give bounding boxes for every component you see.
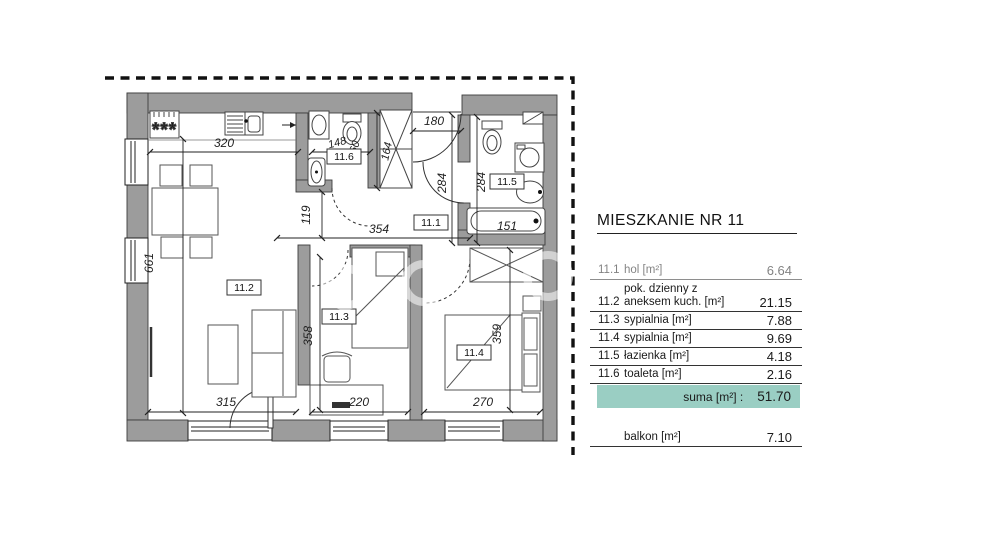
chair: [190, 237, 212, 258]
room-label: hol [m²]: [624, 264, 738, 277]
toilet: [482, 121, 502, 154]
table-row: 11.4 sypialnia [m²] 9.69: [590, 330, 802, 348]
room-label-text: 11.2: [234, 282, 254, 294]
floor-plan-drawing: ***: [0, 0, 1003, 558]
room-number: 11.6: [590, 368, 624, 381]
table-row: 11.1 hol [m²] 6.64: [590, 262, 802, 280]
area-table: MIESZKANIE NR 11 11.1 hol [m²] 6.64 11.2…: [590, 212, 802, 447]
room-label: sypialnia [m²]: [624, 314, 738, 327]
table-row: 11.3 sypialnia [m²] 7.88: [590, 312, 802, 330]
room-area: 6.64: [738, 264, 802, 277]
room-number: 11.2: [590, 296, 624, 309]
room-label-text: 11.3: [329, 311, 349, 323]
window-left-1: [125, 139, 148, 185]
wall-segment: [127, 185, 148, 238]
chair: [161, 237, 183, 258]
area-table-rows: 11.1 hol [m²] 6.64 11.2 pok. dzienny zan…: [590, 262, 802, 384]
table-row: 11.2 pok. dzienny zaneksem kuch. [m²] 21…: [590, 280, 802, 312]
room-area: 2.16: [738, 368, 802, 381]
room-label-text: 11.6: [334, 151, 354, 163]
wall-segment: [127, 283, 148, 420]
chair: [190, 165, 212, 186]
wall-segment: [298, 245, 310, 385]
dim-kitchen-width: 320: [214, 136, 234, 150]
balkon-label: balkon [m²]: [624, 431, 738, 444]
table-row: 11.6 toaleta [m²] 2.16: [590, 366, 802, 384]
room-label: pok. dzienny zaneksem kuch. [m²]: [624, 283, 738, 309]
page-title: MIESZKANIE NR 11: [597, 212, 797, 234]
washing-machine: [515, 143, 544, 172]
dim-bed1-width: 220: [348, 395, 369, 409]
suma-row: suma [m²] : 51.70: [597, 385, 800, 408]
suma-value: 51.70: [757, 389, 791, 404]
room-label-living: 11.2: [227, 280, 261, 295]
room-label: sypialnia [m²]: [624, 332, 738, 345]
wall-segment: [296, 113, 308, 180]
wall-segment: [368, 113, 380, 188]
window-bottom-bed1: [330, 421, 388, 440]
room-label-bed1: 11.3: [322, 309, 356, 324]
dining-table: [152, 188, 218, 235]
small-basin: [308, 158, 325, 186]
wc-door-arc-dashed: [332, 188, 370, 226]
room-number: 11.3: [590, 314, 624, 327]
room-number: 11.5: [590, 350, 624, 363]
chair: [160, 165, 182, 186]
dim-bed2-height: 359: [490, 324, 504, 344]
washbasin: [309, 111, 329, 139]
room-label-bed2: 11.4: [457, 345, 491, 360]
wall-segment: [127, 93, 412, 113]
room-number: 11.4: [590, 332, 624, 345]
room-area: 9.69: [738, 332, 802, 345]
living-room-furniture: [151, 310, 296, 397]
dim-entrance-width: 180: [424, 114, 444, 128]
corner-shelf: [523, 112, 543, 124]
dim-bed2-width: 270: [472, 395, 493, 409]
dining-set: [152, 165, 218, 258]
dim-bathtub-length: 151: [497, 219, 517, 233]
balkon-value: 7.10: [738, 431, 802, 444]
room-area: 4.18: [738, 350, 802, 363]
dim-passage-height: 119: [299, 205, 313, 224]
room-area: 7.88: [738, 314, 802, 327]
wall-segment: [543, 115, 557, 441]
room-label-bath: 11.5: [490, 174, 524, 189]
suma-label: suma [m²] :: [683, 390, 743, 404]
table-row: 11.5 łazienka [m²] 4.18: [590, 348, 802, 366]
stove-burners-symbol: ***: [152, 120, 177, 141]
coffee-table: [208, 325, 238, 384]
room-label-text: 11.5: [497, 176, 517, 188]
kitchen-sink: [225, 112, 263, 135]
dim-bath-height: 284: [474, 172, 488, 193]
desk-chair: [322, 352, 352, 382]
dim-bed1-height: 358: [301, 326, 315, 346]
balkon-row: balkon [m²] 7.10: [590, 429, 802, 447]
vent-arrow: [282, 122, 296, 128]
wall-segment: [127, 93, 148, 139]
sofa: [252, 310, 296, 397]
wall-segment: [388, 420, 445, 441]
room-label-line2: aneksem kuch. [m²]: [624, 296, 724, 308]
room-area: 21.15: [738, 296, 802, 309]
desk: [310, 385, 383, 415]
dim-hall-width: 354: [369, 222, 389, 236]
dim-living-width: 315: [216, 395, 236, 409]
wall-segment: [127, 420, 188, 441]
wall-segment: [272, 420, 330, 441]
room-label: toaleta [m²]: [624, 368, 738, 381]
room-label-text: 11.4: [464, 347, 484, 359]
wall-segment: [458, 115, 470, 162]
stove: ***: [150, 111, 179, 141]
room-label-line1: pok. dzienny z: [624, 283, 738, 296]
room-label: łazienka [m²]: [624, 350, 738, 363]
window-bottom-bed2: [445, 421, 503, 440]
room-number: 11.1: [590, 264, 624, 277]
dim-living-height: 661: [142, 253, 156, 273]
room-label-hol: 11.1: [414, 215, 448, 230]
dim-hall-height: 284: [435, 173, 449, 194]
room-label-wc: 11.6: [327, 149, 361, 164]
room-label-text: 11.1: [421, 217, 441, 229]
floor-plan-page: ***: [0, 0, 1003, 558]
